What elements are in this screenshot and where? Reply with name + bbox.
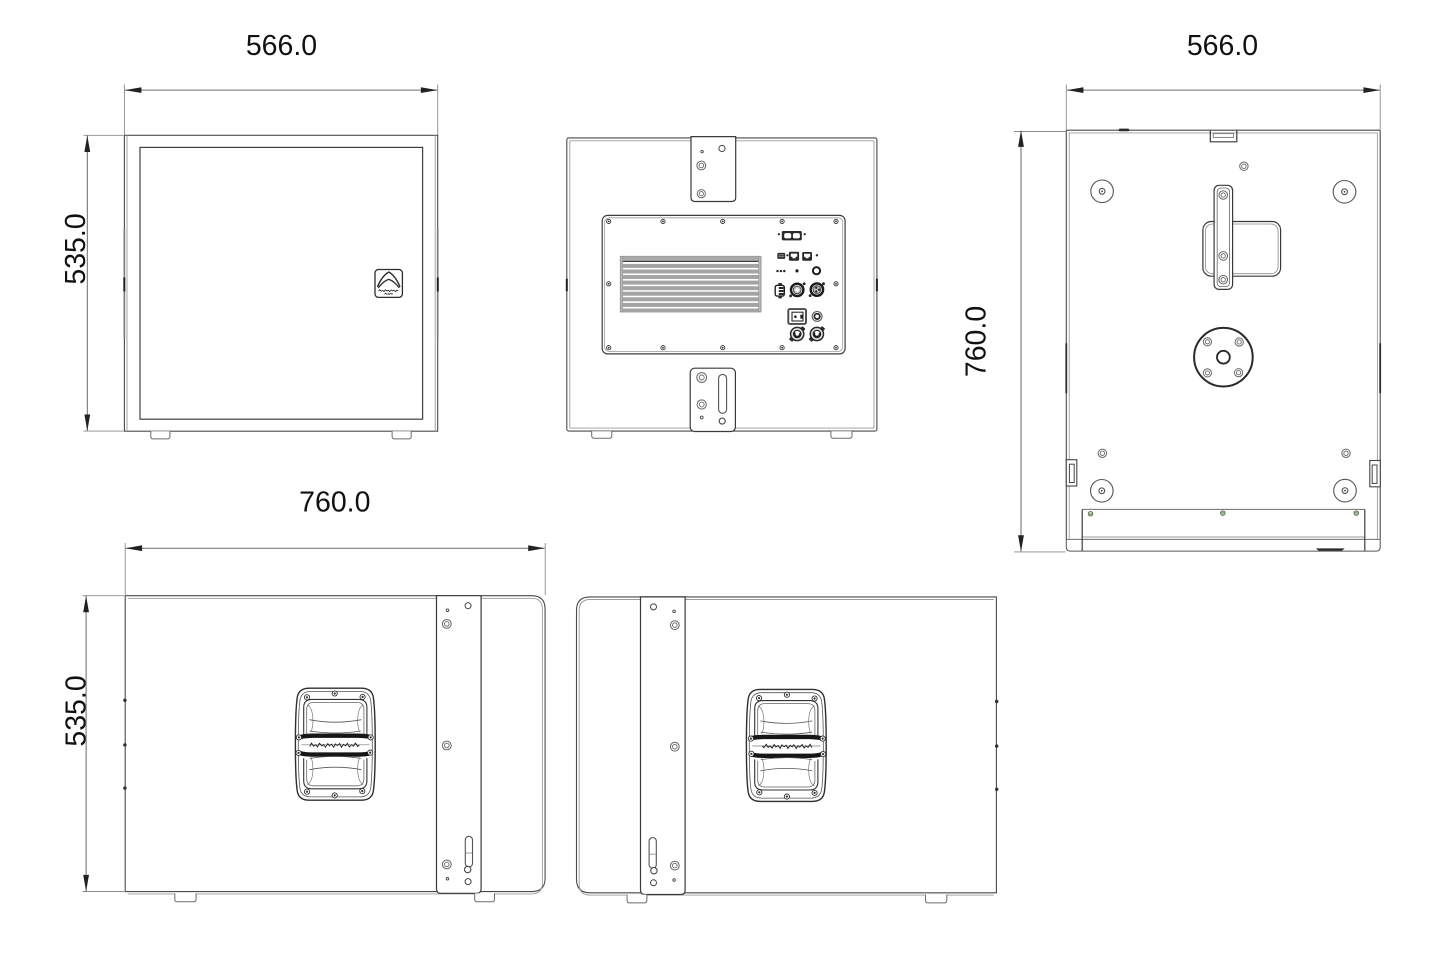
svg-text:566.0: 566.0: [1187, 30, 1258, 62]
svg-text:760.0: 760.0: [961, 306, 993, 377]
svg-text:535.0: 535.0: [60, 675, 92, 746]
svg-text:566.0: 566.0: [246, 30, 317, 62]
svg-text:760.0: 760.0: [299, 487, 370, 519]
